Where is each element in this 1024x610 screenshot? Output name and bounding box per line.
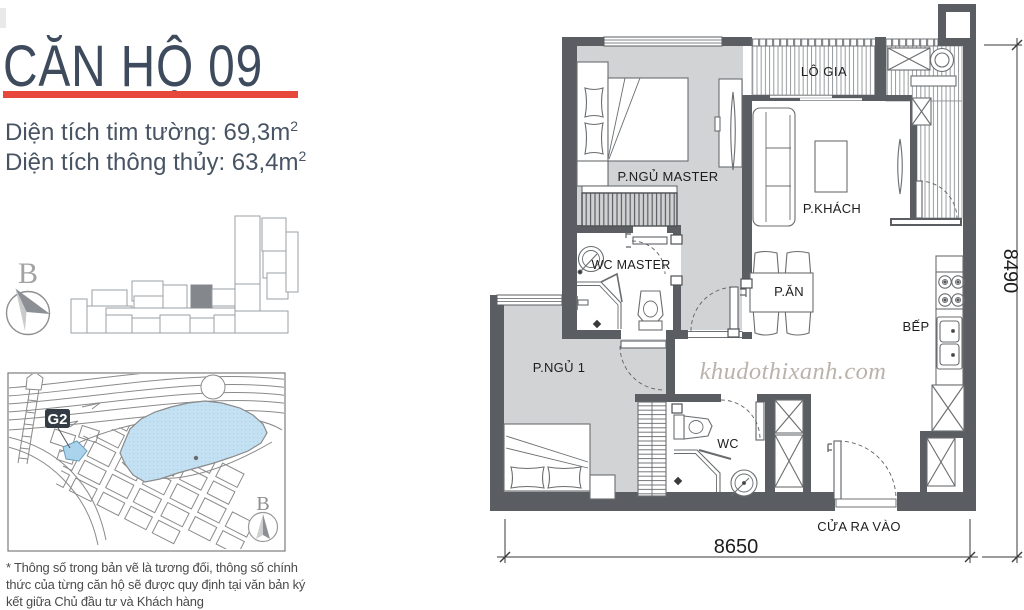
svg-text:8650: 8650 <box>714 536 759 558</box>
svg-text:LÔ GIA: LÔ GIA <box>801 64 847 79</box>
svg-text:B: B <box>18 257 38 290</box>
svg-text:B: B <box>256 493 269 515</box>
svg-text:WC: WC <box>717 437 738 451</box>
svg-text:P.NGỦ MASTER: P.NGỦ MASTER <box>618 169 719 184</box>
svg-text:WC MASTER: WC MASTER <box>591 258 670 272</box>
svg-text:CỬA RA VÀO: CỬA RA VÀO <box>817 519 900 534</box>
svg-text:P.KHÁCH: P.KHÁCH <box>803 201 861 216</box>
svg-text:BẾP: BẾP <box>903 319 930 334</box>
svg-text:khudothixanh.com: khudothixanh.com <box>700 358 887 385</box>
svg-text:P.NGỦ 1: P.NGỦ 1 <box>533 360 585 375</box>
svg-text:8490: 8490 <box>999 249 1021 294</box>
svg-text:P.ĂN: P.ĂN <box>774 284 804 299</box>
svg-text:G2: G2 <box>47 411 67 428</box>
